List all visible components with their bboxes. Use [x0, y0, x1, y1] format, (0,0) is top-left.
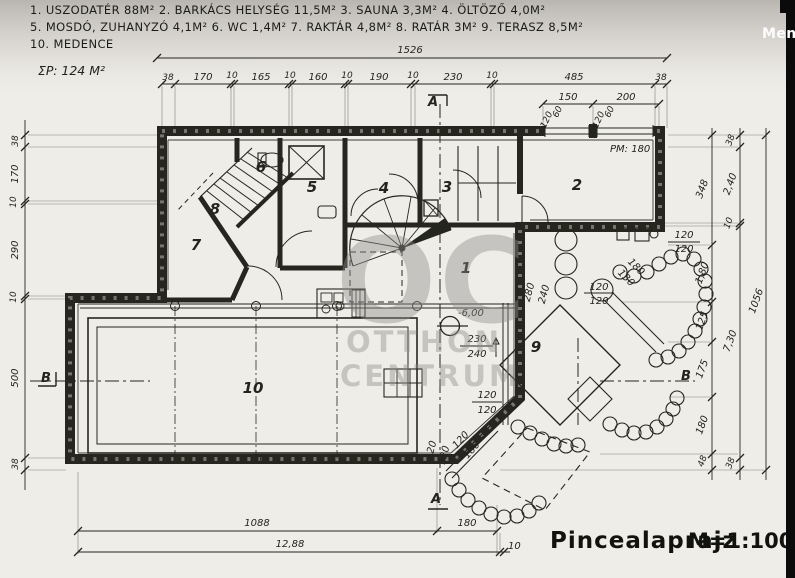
dim-label: 1088: [244, 518, 269, 529]
scan-edge-strip: [786, 0, 795, 578]
dim-label: 500: [10, 368, 21, 387]
total-area-label: ΣP: 124 M²: [38, 63, 105, 78]
dim-label: 120: [589, 282, 608, 293]
section-marker-a-top: A: [427, 95, 438, 110]
dim-label: 150: [558, 92, 577, 103]
dim-label: 485: [564, 72, 583, 83]
dim-label: 10: [284, 71, 296, 81]
dim-label: 170: [10, 164, 21, 183]
room-label-6: 6: [256, 158, 266, 176]
room-label-4: 4: [378, 179, 389, 197]
watermark: OC OTTHON CENTRUM: [336, 212, 529, 393]
dim-label: 120: [674, 230, 693, 241]
room-label-5: 5: [307, 178, 317, 196]
room-label-10: 10: [243, 379, 264, 397]
room-label-8: 8: [210, 200, 220, 218]
dim-label: 38: [162, 73, 174, 83]
dim-label: 10: [9, 291, 19, 303]
dim-label: 230: [443, 72, 462, 83]
dim-label: 10: [407, 71, 419, 81]
room-label-2: 2: [572, 176, 582, 194]
dim-label: 120: [589, 296, 608, 307]
dim-label: 290: [10, 240, 21, 259]
dim-label: 12,88: [276, 539, 305, 550]
dim-label: 160: [308, 72, 327, 83]
room-label-7: 7: [191, 236, 202, 254]
dim-label: 10: [486, 71, 498, 81]
floorplan-drawing: A A B B 1526 38 170 10 165 10 160 10: [0, 0, 795, 578]
dim-label: 120: [674, 244, 693, 255]
dim-label: 10: [508, 541, 521, 552]
dim-label: 190: [369, 72, 388, 83]
dim-label: 10: [9, 196, 19, 208]
section-marker-b-right: B: [681, 369, 691, 384]
dim-label: 10: [341, 71, 353, 81]
dim-label: 200: [616, 92, 635, 103]
drawing-scale: M=1:100: [688, 529, 793, 553]
dim-label: 38: [11, 458, 21, 470]
section-marker-b-left: B: [41, 371, 51, 386]
dim-label: 10: [226, 71, 238, 81]
watermark-line1: OTTHON: [346, 325, 502, 359]
room-label-9: 9: [531, 338, 541, 356]
ceiling-height-label: PM: 180: [610, 144, 650, 155]
dim-label: 1526: [397, 45, 422, 56]
dim-label: 38: [11, 135, 21, 147]
legend-line-2: 5. MOSDÓ, ZUHANYZÓ 4,1M² 6. WC 1,4M² 7. …: [30, 19, 583, 34]
dim-label: 180: [457, 518, 476, 529]
title-block: Pincealaprajz M=1:100: [550, 528, 793, 554]
dim-label: 120: [477, 405, 496, 416]
scan-edge-corner: [780, 0, 795, 13]
save-button[interactable]: Ment: [762, 26, 795, 42]
dim-label: 170: [193, 72, 212, 83]
scanned-floorplan-page: A A B B 1526 38 170 10 165 10 160 10: [0, 0, 795, 578]
dim-label: 165: [251, 72, 270, 83]
room-label-3: 3: [442, 178, 452, 196]
dim-label: 38: [655, 73, 667, 83]
legend-line-1: 1. USZODATÉR 88M² 2. BARKÁCS HELYSÉG 11,…: [30, 1, 545, 17]
watermark-line2: CENTRUM: [340, 359, 521, 393]
legend-line-3: 10. MEDENCE: [30, 37, 114, 51]
section-marker-a-bottom: A: [430, 492, 441, 507]
